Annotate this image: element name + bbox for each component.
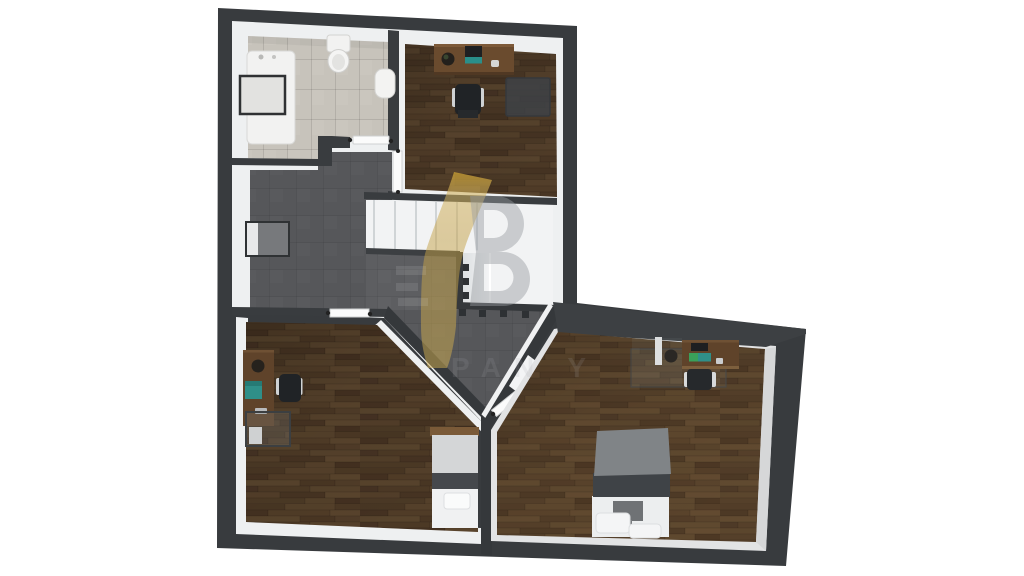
svg-text:PAN Y: PAN Y	[451, 352, 599, 383]
